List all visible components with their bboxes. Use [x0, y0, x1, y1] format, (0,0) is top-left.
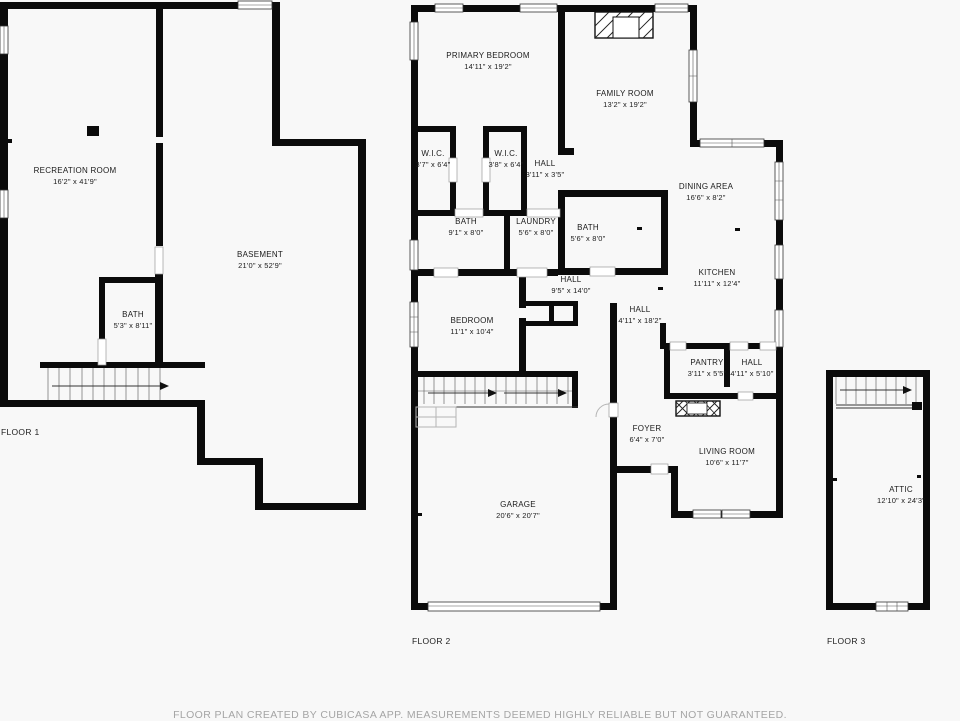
door-opening — [609, 403, 618, 417]
window-icon — [876, 602, 908, 611]
door-opening — [527, 209, 560, 217]
floor-2-label: FLOOR 2 — [412, 636, 450, 646]
door-opening — [670, 342, 686, 350]
floor-plan-image: RECREATION ROOM16'2" x 41'9"BASEMENT21'0… — [0, 0, 960, 720]
door-opening — [590, 267, 615, 276]
door-opening — [482, 158, 490, 182]
door-opening — [455, 209, 483, 217]
stair-landing — [416, 407, 456, 427]
door-opening — [517, 268, 547, 277]
floor-1-walls — [0, 2, 366, 510]
floor-3-label: FLOOR 3 — [827, 636, 865, 646]
floor-2-walls — [411, 5, 783, 610]
fireplace-icon — [595, 12, 653, 38]
door-opening — [730, 342, 748, 350]
floor-1-label: FLOOR 1 — [1, 427, 39, 437]
floor-3-staircase — [836, 377, 922, 410]
point-marker — [87, 126, 99, 136]
door-opening — [760, 342, 776, 350]
door-opening — [155, 247, 163, 274]
garage-door — [428, 602, 600, 611]
floorplan-canvas — [0, 0, 960, 720]
floor-2-staircase — [416, 377, 578, 427]
attic-staircase-box — [676, 401, 720, 416]
floor-3-ticks — [833, 475, 921, 481]
floor-3-openings — [876, 602, 908, 611]
floor-1-openings — [0, 1, 272, 365]
stair-direction-arrow — [903, 386, 912, 394]
front-door — [651, 464, 668, 474]
door-opening — [434, 268, 458, 277]
door-opening — [98, 339, 106, 365]
floor-1-staircase — [48, 368, 169, 400]
door-opening — [449, 158, 457, 182]
stair-direction-arrow — [558, 389, 567, 397]
door-swing-arc — [596, 404, 609, 417]
door-opening — [738, 392, 753, 400]
disclaimer-text: FLOOR PLAN CREATED BY CUBICASA APP. MEAS… — [0, 709, 960, 721]
stair-direction-arrow — [160, 382, 169, 390]
floor-2-openings — [410, 4, 783, 611]
